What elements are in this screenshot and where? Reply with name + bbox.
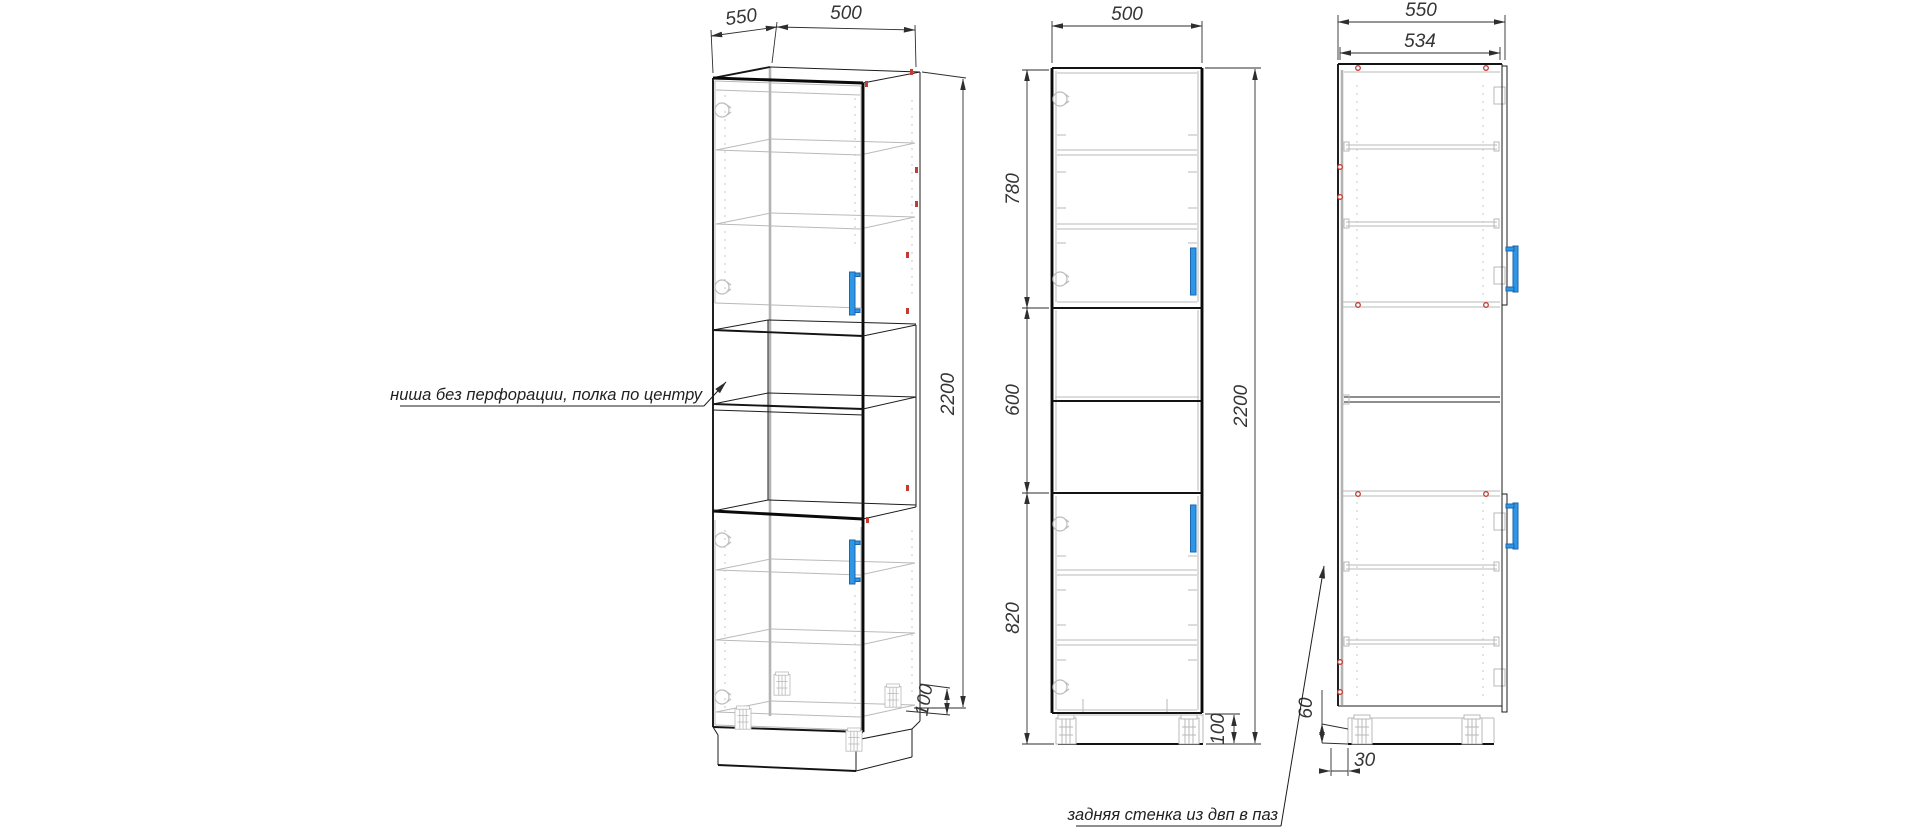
dim-side-inner-depth: 534 (1404, 31, 1436, 52)
adjustable-foot-icon (1462, 715, 1482, 744)
adjustable-foot-icon (735, 706, 751, 729)
annotation-niche-text: ниша без перфорации, полка по центру (390, 386, 704, 404)
dim-front-niche: 600 (1003, 384, 1024, 416)
background (0, 0, 1920, 834)
annotation-niche: ниша без перфорации, полка по центру (390, 382, 726, 406)
dim-front-bottom-section: 820 (1003, 602, 1024, 634)
dim-front-plinth: 100 (1208, 713, 1229, 745)
adjustable-foot-icon (885, 684, 901, 707)
drawing-canvas: 550 500 2200 100 (0, 0, 1920, 834)
dim-iso-height: 2200 (938, 372, 959, 416)
adjustable-foot-icon (1352, 715, 1372, 744)
adjustable-foot-icon (1056, 715, 1076, 744)
door-handle-icon (1191, 248, 1197, 295)
dim-side-back-offset: 30 (1354, 750, 1376, 771)
dim-side-depth: 550 (1405, 0, 1437, 21)
dim-iso-width: 500 (830, 3, 862, 24)
dim-front-top-section: 780 (1003, 173, 1024, 205)
technical-drawing: 550 500 2200 100 (0, 0, 1920, 834)
annotation-back-panel-text: задняя стенка из двп в паз (1067, 806, 1279, 824)
dim-front-width: 500 (1111, 4, 1143, 25)
door-handle-icon (1191, 505, 1197, 552)
adjustable-foot-icon (774, 672, 790, 695)
dim-front-height: 2200 (1231, 384, 1252, 428)
adjustable-foot-icon (1179, 715, 1199, 744)
dim-iso-depth: 550 (724, 5, 759, 30)
adjustable-foot-icon (846, 728, 862, 751)
